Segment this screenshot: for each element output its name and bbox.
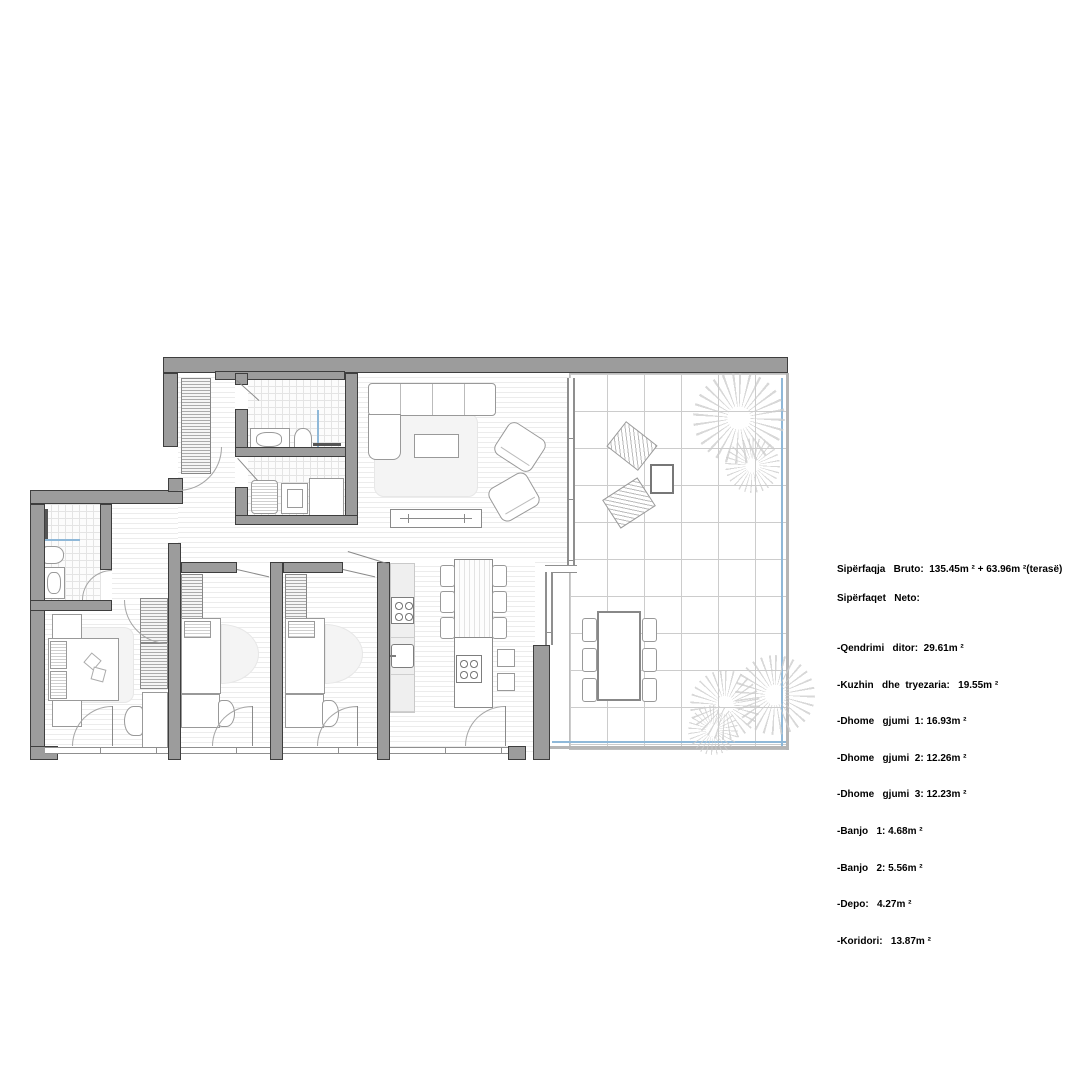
wall (30, 490, 183, 504)
bath1-sink (47, 572, 61, 594)
sliding-glass-door (567, 378, 575, 566)
kitchen-cooktop (391, 597, 414, 624)
legend-item: -Depo: 4.27m ² (837, 898, 998, 913)
bed1-nightstand-bottom (52, 700, 82, 727)
plant-icon (688, 705, 738, 755)
island-stool (497, 673, 515, 691)
bath1-shower-glass (40, 539, 80, 541)
island-cooktop (456, 655, 482, 683)
dining-chair (492, 565, 507, 587)
balcony-door-leaf (252, 706, 253, 746)
wall (508, 746, 526, 760)
legend-item: -Qendrimi ditor: 29.61m ² (837, 642, 998, 657)
kitchen-glass (545, 572, 553, 645)
bedroom2-wardrobe (181, 574, 203, 619)
plant-icon (735, 655, 815, 735)
bed1-pillow (50, 641, 67, 669)
bedroom2-desk (181, 694, 220, 728)
legend-item: -Banjo 2: 5.56m ² (837, 862, 998, 877)
window (390, 747, 508, 754)
terrace-chair (642, 618, 657, 642)
wall (235, 515, 358, 525)
dining-chair (440, 617, 455, 639)
legend-item: -Dhome gjumi 1: 16.93m ² (837, 715, 998, 730)
terrace-chair (582, 618, 597, 642)
bed1-pillow (50, 671, 67, 699)
terrace-side-table (650, 464, 674, 494)
wall (30, 504, 45, 760)
wall (270, 562, 283, 760)
bedroom1-chair (124, 706, 143, 736)
legend-item: -Banjo 1: 4.68m ² (837, 825, 998, 840)
wall (235, 487, 248, 517)
dining-chair (440, 565, 455, 587)
wall (30, 600, 112, 611)
wall (168, 543, 181, 760)
shrub-icon (725, 438, 780, 493)
tv-stand-tick2 (464, 514, 465, 523)
wall (181, 562, 237, 573)
corridor-floor-mid (235, 523, 378, 565)
bedroom3-desk (285, 694, 324, 728)
depo-dryer-door (287, 489, 303, 508)
terrace-glass-bottom (552, 741, 786, 743)
bath1-toilet (43, 546, 64, 564)
legend-item: -Kuzhin dhe tryezaria: 19.55m ² (837, 679, 998, 694)
wall (235, 447, 358, 457)
island-stool (497, 649, 515, 667)
bedroom1-desk (142, 692, 168, 748)
coffee-table (414, 434, 459, 458)
wall (100, 504, 112, 570)
legend-gross-area: Sipërfaqja Bruto: 135.45m ² + 63.96m ²(t… (837, 564, 1062, 575)
legend-room-list: -Qendrimi ditor: 29.61m ² -Kuzhin dhe tr… (837, 620, 998, 971)
balcony-door-leaf (357, 706, 358, 746)
sofa-main (368, 383, 496, 416)
dining-chair (440, 591, 455, 613)
legend-item: -Dhome gjumi 3: 12.23m ² (837, 788, 998, 803)
terrace-dining-table (597, 611, 641, 701)
bath2-shower-bar (313, 443, 341, 446)
depo-washer (251, 480, 278, 514)
bedroom3-wardrobe (285, 574, 307, 619)
legend-item: -Koridori: 13.87m ² (837, 935, 998, 950)
terrace-chair (582, 648, 597, 672)
sofa-chaise (368, 414, 401, 460)
kitchen-counter (390, 563, 415, 713)
wall (533, 645, 550, 760)
wall (235, 409, 248, 449)
depo-counter (309, 478, 344, 516)
dining-table (454, 559, 493, 639)
legend-item: -Dhome gjumi 2: 12.26m ² (837, 752, 998, 767)
tv-stand-tick1 (408, 514, 409, 523)
bath2-sink (256, 432, 282, 447)
wall (283, 562, 343, 573)
terrace-chair (582, 678, 597, 702)
bed1-nightstand-top (52, 614, 82, 639)
wall (163, 373, 178, 447)
dining-chair (492, 591, 507, 613)
balcony-door-leaf (112, 706, 113, 746)
window (45, 747, 168, 754)
terrace-edge-bottom (550, 746, 788, 749)
area-legend: Sipërfaqja Bruto: 135.45m ² + 63.96m ²(t… (837, 564, 1072, 619)
wall (377, 562, 390, 760)
floor-plan-page: Sipërfaqja Bruto: 135.45m ² + 63.96m ²(t… (0, 0, 1080, 1080)
window (181, 747, 270, 754)
bedroom1-wardrobe (140, 643, 168, 689)
window (283, 747, 377, 754)
wall (345, 373, 358, 525)
tv-stand-line (400, 518, 472, 519)
bedroom2-pillow (184, 621, 211, 638)
terrace-chair (642, 678, 657, 702)
terrace-chair (642, 648, 657, 672)
dining-chair (492, 617, 507, 639)
bedroom3-pillow (288, 621, 315, 638)
legend-net-heading: Sipërfaqet Neto: (837, 593, 920, 604)
balcony-door-leaf (505, 706, 506, 746)
